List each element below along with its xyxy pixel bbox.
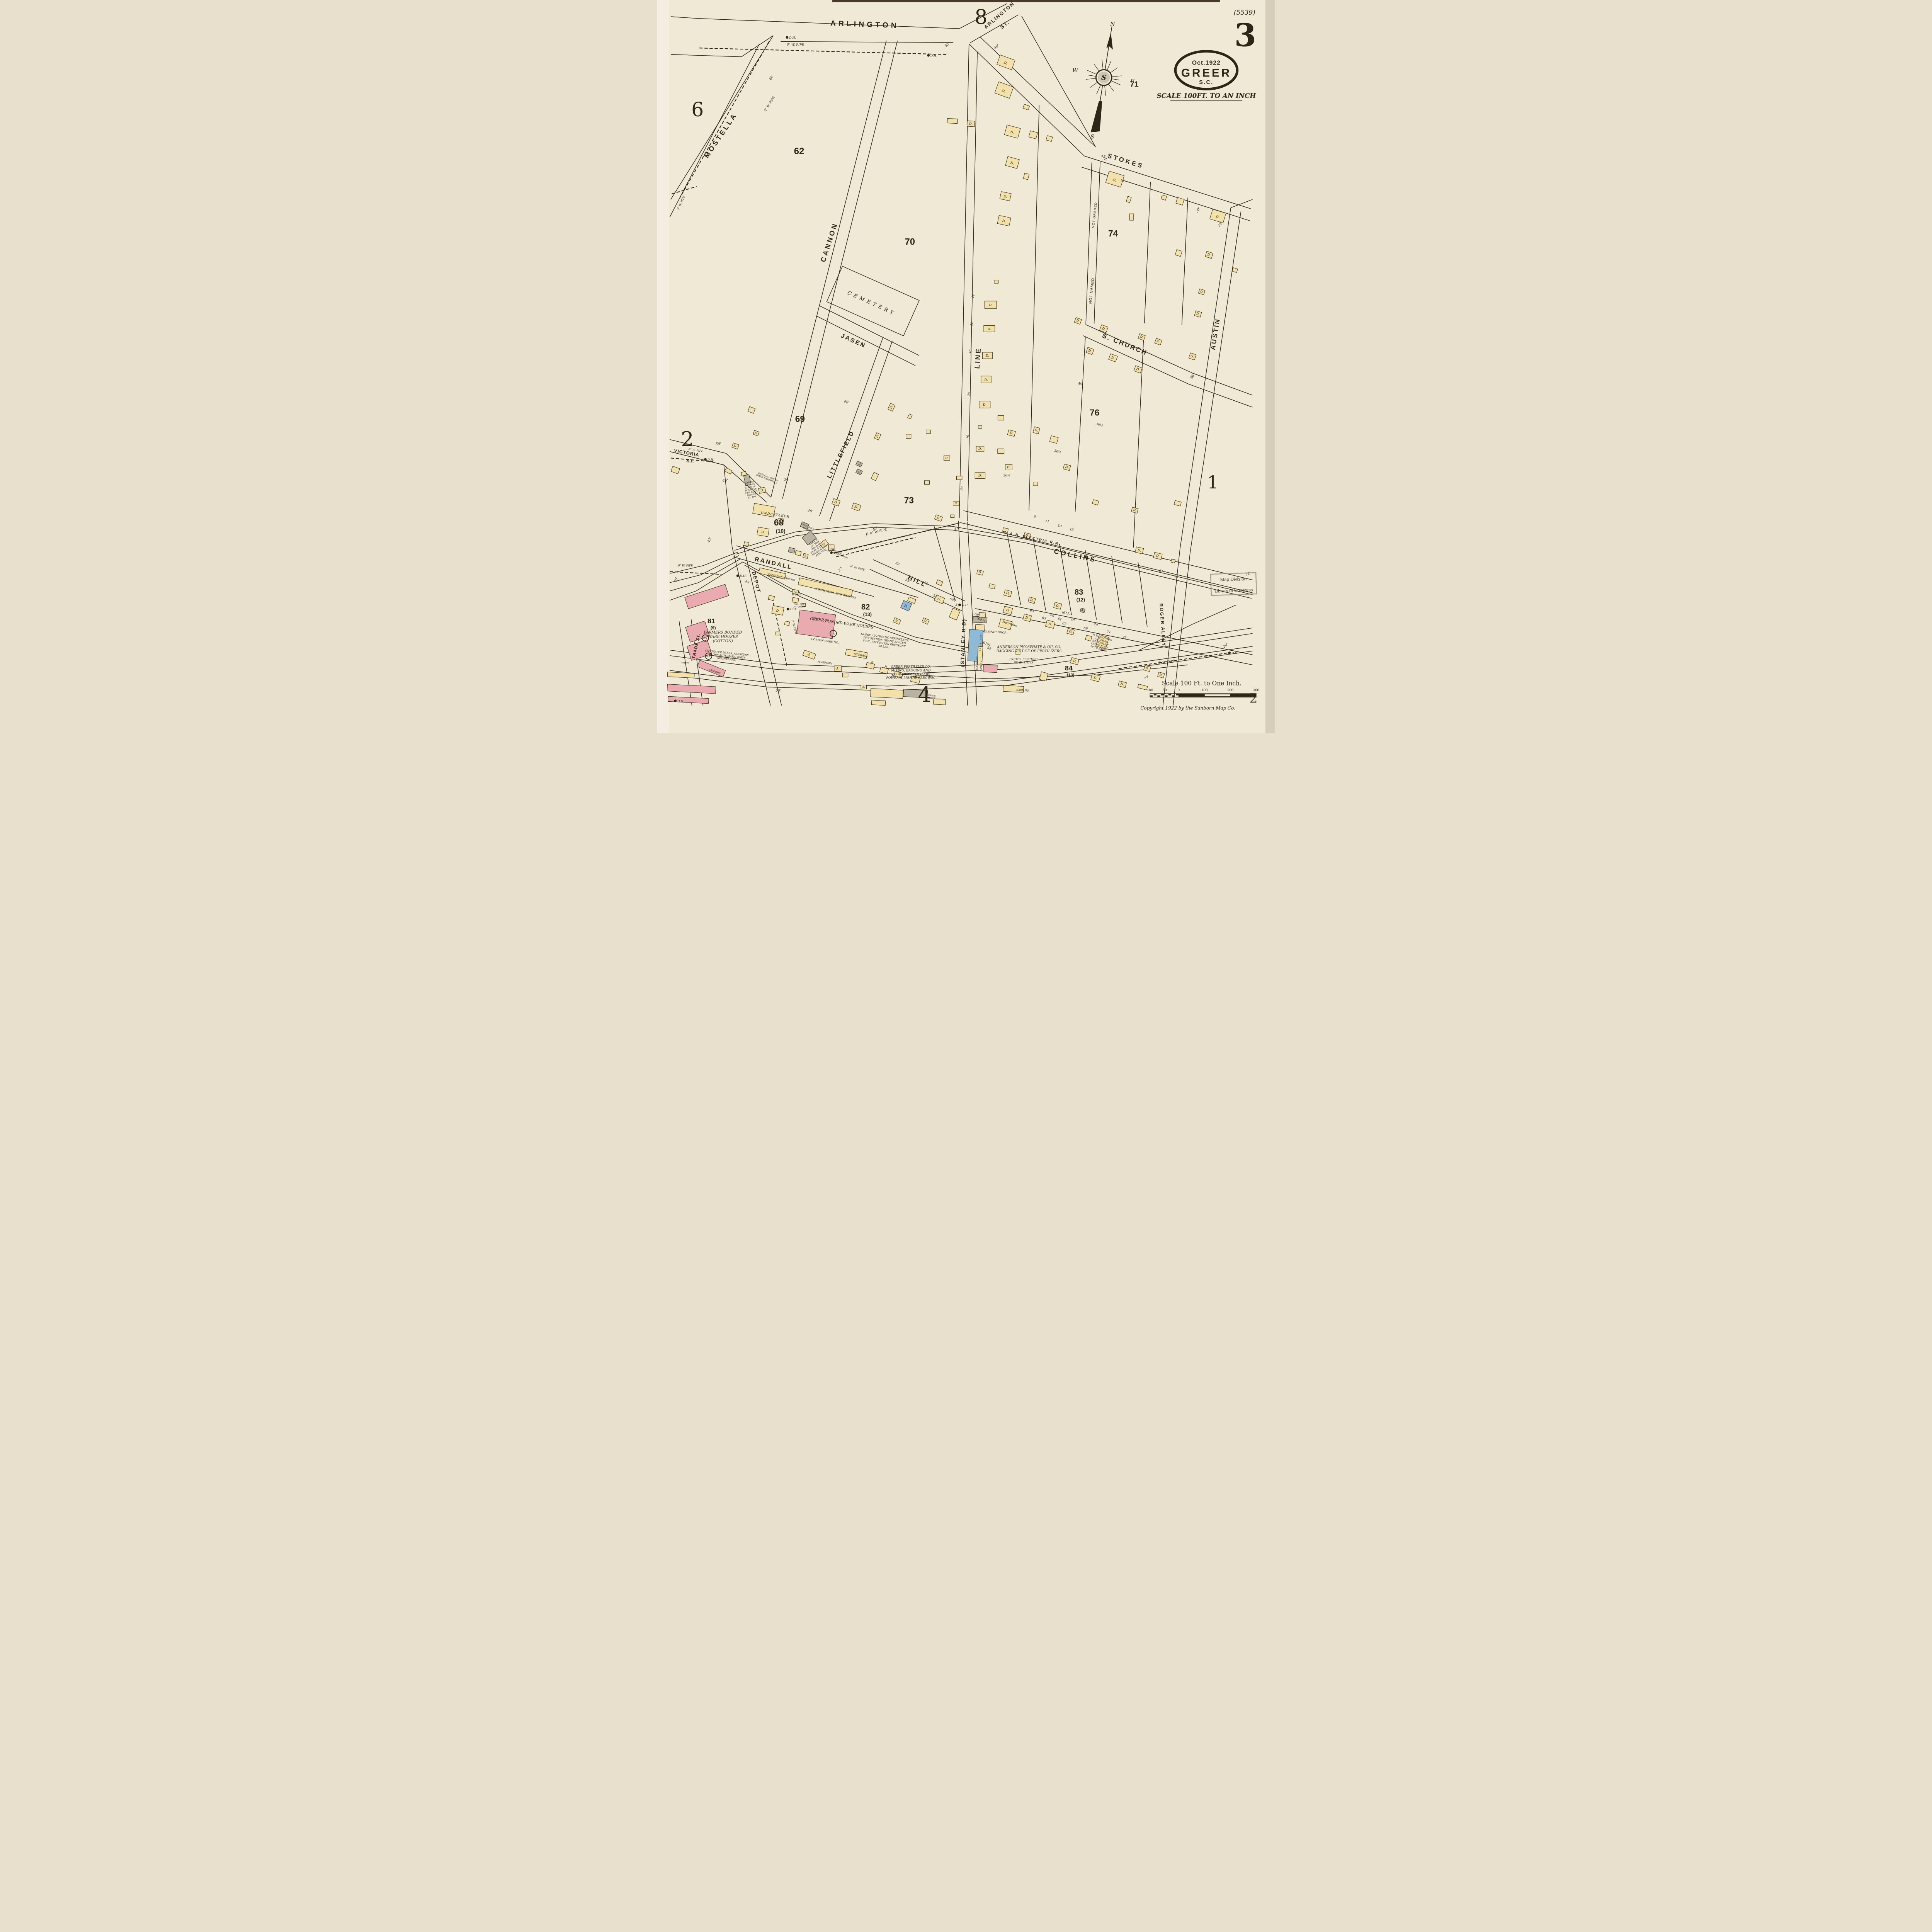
building-use-letter: D. bbox=[1002, 219, 1006, 223]
building-footprint bbox=[957, 476, 962, 480]
map-date: Oct.1922 bbox=[1192, 60, 1221, 66]
building: D. bbox=[944, 456, 950, 460]
scale-bar-check bbox=[1168, 694, 1171, 696]
building: D. bbox=[985, 301, 997, 308]
building bbox=[947, 118, 957, 123]
plate-reference: (5539) bbox=[1234, 9, 1255, 16]
block-number: 76 bbox=[1090, 407, 1099, 417]
hydrant-label: D.H. bbox=[739, 574, 747, 578]
building bbox=[1130, 214, 1134, 220]
map-annotation: 6" W. PIPE bbox=[678, 564, 693, 567]
building bbox=[998, 415, 1004, 420]
block-number: 73 bbox=[904, 495, 914, 505]
building bbox=[871, 700, 885, 706]
building-footprint bbox=[741, 471, 747, 476]
hydrant-label: D.H. bbox=[961, 603, 969, 607]
map-annotation: VALVES bbox=[681, 662, 690, 664]
building bbox=[957, 476, 962, 480]
block-dwelling-count: (10) bbox=[776, 528, 786, 534]
building-use-letter: A. bbox=[836, 667, 840, 670]
hydrant-label: D.H. bbox=[677, 699, 684, 703]
scale-bar-check bbox=[1161, 694, 1164, 696]
building bbox=[792, 597, 799, 603]
building-use-letter: D. bbox=[969, 122, 973, 126]
street-width-dimension: 50' bbox=[776, 689, 781, 693]
building bbox=[924, 481, 929, 485]
building bbox=[1171, 559, 1175, 563]
hydrant-label: D.H. bbox=[1231, 651, 1238, 655]
building-use-letter: A. bbox=[862, 685, 865, 689]
building-use-letter: D. bbox=[984, 378, 988, 381]
compass-east: E bbox=[1130, 78, 1135, 85]
block-number: 62 bbox=[794, 146, 804, 156]
scale-bar-check bbox=[1150, 696, 1153, 697]
building-footprint bbox=[983, 665, 997, 673]
as-letters: A.S. bbox=[706, 655, 711, 658]
street-width-dimension: 40' bbox=[954, 527, 960, 531]
building-footprint bbox=[947, 118, 957, 123]
building bbox=[784, 621, 789, 625]
building-footprint bbox=[1130, 214, 1134, 220]
building bbox=[983, 665, 997, 673]
adjacent-sheet-number: 1 bbox=[1207, 472, 1218, 493]
building-footprint bbox=[978, 426, 982, 429]
street-width-dimension: 40' bbox=[1078, 382, 1083, 386]
building bbox=[994, 280, 998, 283]
hydrant-label: D.H. bbox=[789, 36, 796, 39]
building bbox=[741, 471, 747, 476]
building-footprint bbox=[1171, 559, 1175, 563]
hydrant-dot-icon bbox=[786, 36, 789, 39]
map-page: D.D.D.D.D.D.D.D.D.D.D.D.D.D.D.D.S.D.D.D.… bbox=[657, 0, 1275, 733]
blue-index-stamp: 2 bbox=[1249, 691, 1257, 706]
scale-bar-check bbox=[1176, 694, 1179, 696]
building: D. bbox=[979, 401, 990, 408]
scale-note: SCALE 100FT. TO AN INCH bbox=[1157, 92, 1257, 99]
block-dwelling-count: (13) bbox=[1067, 673, 1075, 677]
block-number: 70 bbox=[905, 236, 915, 247]
building: A. bbox=[834, 666, 842, 671]
block-dwelling-count: (9) bbox=[711, 626, 716, 630]
as-letters: A.S. bbox=[702, 637, 707, 640]
building: D. bbox=[976, 446, 984, 451]
hydrant-dot-icon bbox=[736, 575, 739, 577]
sanborn-map-sheet: D.D.D.D.D.D.D.D.D.D.D.D.D.D.D.D.S.D.D.D.… bbox=[657, 0, 1275, 733]
building bbox=[951, 515, 954, 517]
building: D. bbox=[953, 501, 959, 505]
scan-left-margin bbox=[657, 0, 669, 733]
building: D. bbox=[757, 527, 769, 537]
scan-right-edge bbox=[1265, 0, 1275, 733]
building-use-letter: D. bbox=[978, 447, 982, 451]
building bbox=[926, 430, 931, 434]
building-footprint bbox=[998, 449, 1004, 453]
copyright-line: Copyright 1922 by the Sanborn Map Co. bbox=[1140, 706, 1235, 711]
hydrant-dot-icon bbox=[674, 700, 677, 702]
building-footprint bbox=[792, 597, 799, 603]
building: S. bbox=[803, 553, 808, 558]
compass-south: S bbox=[1090, 134, 1094, 140]
sheet-number: 3 bbox=[1234, 17, 1256, 54]
building-footprint bbox=[871, 689, 903, 699]
map-annotation: D.H. 200'2½" HOSE bbox=[793, 603, 805, 608]
block-number: 84 bbox=[1065, 664, 1073, 672]
street-name-label: LINE bbox=[973, 347, 983, 369]
hydrant-label: D.H. bbox=[707, 458, 714, 461]
building bbox=[978, 426, 982, 429]
state-name: S.C. bbox=[1199, 79, 1213, 85]
scale-bar-check bbox=[1154, 694, 1156, 696]
street-width-dimension: 46 bbox=[829, 548, 834, 552]
building-footprint bbox=[776, 632, 780, 635]
building-use-letter: D. bbox=[1003, 194, 1008, 199]
building-use-letter: D. bbox=[945, 456, 948, 460]
building-footprint bbox=[924, 481, 929, 485]
building-footprint bbox=[994, 280, 998, 283]
building-use-letter: D. bbox=[954, 502, 957, 505]
building-use-letter: D. bbox=[760, 488, 764, 493]
scale-bar-check bbox=[1157, 696, 1160, 697]
building-use-letter: D. bbox=[776, 608, 780, 613]
street-width-dimension: 50' bbox=[716, 442, 721, 446]
building-footprint bbox=[926, 430, 931, 434]
building bbox=[998, 449, 1004, 453]
hydrant-dot-icon bbox=[704, 458, 707, 461]
building-use-letter: D. bbox=[988, 303, 992, 307]
compass-west: W bbox=[1072, 67, 1078, 73]
as-letters: A.S. bbox=[830, 633, 835, 635]
block-number: 83 bbox=[1075, 588, 1083, 597]
building bbox=[744, 542, 749, 546]
scale-bar-tick-label: 200 bbox=[1227, 688, 1233, 692]
building-use-letter: D. bbox=[983, 403, 986, 406]
building: D. bbox=[967, 121, 975, 127]
street-width-dimension: 34 bbox=[784, 478, 789, 482]
building bbox=[842, 673, 848, 677]
hydrant-dot-icon bbox=[787, 608, 789, 611]
scale-bar-tick-label: 100 bbox=[1147, 688, 1153, 692]
building-use-letter: D. bbox=[1007, 465, 1010, 469]
city-name: GREER bbox=[1181, 66, 1231, 79]
scale-bar-tick-label: 50 bbox=[1163, 688, 1167, 692]
building-footprint bbox=[998, 415, 1004, 420]
building-footprint bbox=[906, 434, 911, 439]
building: D. bbox=[984, 325, 995, 332]
building bbox=[906, 434, 911, 439]
building-use-letter: D. bbox=[760, 530, 765, 534]
building-footprint bbox=[842, 673, 848, 677]
scan-top-edge bbox=[832, 0, 1220, 2]
building-use-letter: D. bbox=[987, 327, 991, 331]
scale-bar-check bbox=[1165, 696, 1167, 697]
building: D. bbox=[759, 487, 766, 493]
scale-bar-check bbox=[1172, 696, 1175, 697]
adjacent-sheet-number: 8 bbox=[975, 5, 987, 29]
compass-north: N bbox=[1110, 21, 1115, 27]
hydrant-label: D.H. bbox=[930, 54, 937, 57]
map-annotation: 6" W. PIPE bbox=[787, 43, 804, 47]
block-number: 74 bbox=[1108, 228, 1118, 238]
block-number: 69 bbox=[795, 414, 805, 424]
building bbox=[776, 632, 780, 635]
building: D. bbox=[1005, 464, 1012, 470]
building-footprint bbox=[951, 515, 954, 517]
building-use-letter: D. bbox=[985, 354, 989, 357]
block-number: 81 bbox=[707, 617, 715, 625]
hydrant-dot-icon bbox=[1228, 651, 1231, 654]
block-dwelling-count: (12) bbox=[1077, 597, 1085, 602]
stamp-line1: Map Division bbox=[1220, 576, 1247, 582]
building: A. bbox=[1080, 608, 1085, 613]
building: A. bbox=[861, 685, 866, 689]
building-footprint bbox=[871, 700, 885, 706]
building-use-letter: D. bbox=[978, 474, 982, 478]
scale-bar-tick-label: 0 bbox=[1178, 688, 1180, 692]
building-footprint bbox=[784, 621, 789, 625]
building: D. bbox=[981, 376, 991, 383]
lot-number: 36½ bbox=[1003, 473, 1010, 477]
building bbox=[1033, 482, 1038, 486]
building: D. bbox=[772, 605, 784, 615]
block-number: 68 bbox=[774, 517, 784, 527]
block-number: 82 bbox=[861, 603, 870, 611]
building: D. bbox=[982, 352, 992, 359]
building: D. bbox=[975, 473, 985, 479]
scale-bar-caption: Scale 100 Ft. to One Inch. bbox=[1162, 680, 1242, 687]
building bbox=[871, 689, 903, 699]
hydrant-dot-icon bbox=[927, 54, 930, 57]
map-annotation: MIXINGTOWER bbox=[926, 694, 936, 700]
building-footprint bbox=[744, 542, 749, 546]
scale-bar-segment bbox=[1179, 694, 1204, 697]
map-annotation: ANDERSON PHOSPHATE & OIL CO.BAGGING & ST… bbox=[996, 646, 1062, 653]
street-width-dimension: 45' bbox=[722, 479, 728, 483]
building-footprint bbox=[1033, 482, 1038, 486]
scale-bar-tick-label: 100 bbox=[1201, 688, 1207, 692]
adjacent-sheet-number: 6 bbox=[691, 98, 704, 121]
block-dwelling-count: (13) bbox=[863, 612, 872, 617]
